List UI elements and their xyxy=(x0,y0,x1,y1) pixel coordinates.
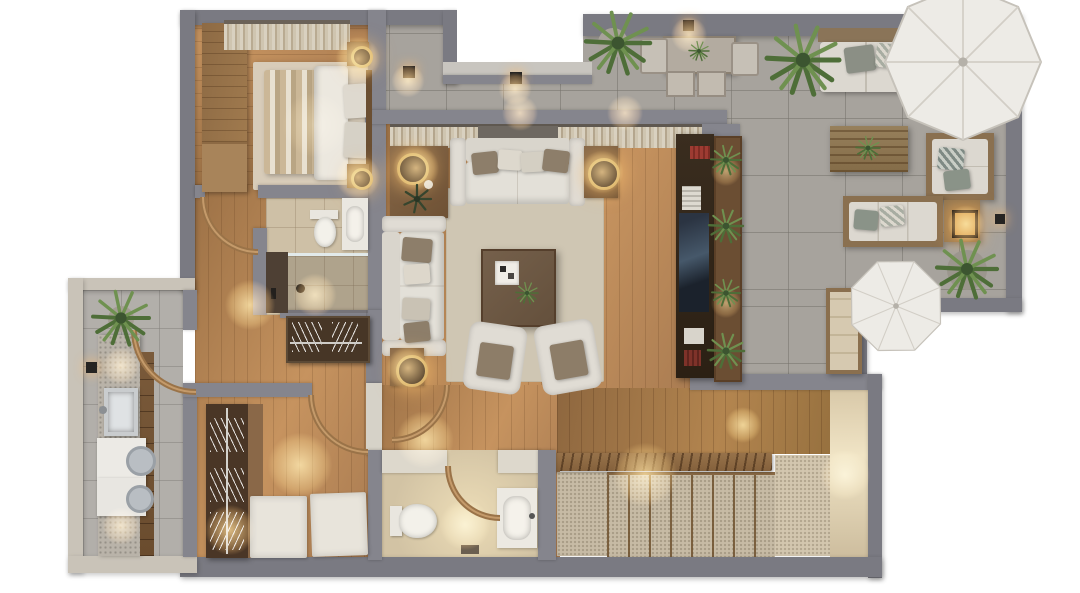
shower-head xyxy=(296,284,305,293)
sofa2-arm xyxy=(382,216,446,232)
lounge-chair-cushion xyxy=(830,292,858,370)
ceiling-light xyxy=(683,20,694,31)
outdoor-pillow xyxy=(943,168,971,191)
laundry-sink-basin xyxy=(108,392,134,432)
tv-screen xyxy=(679,213,709,312)
wall-stairs-right xyxy=(868,374,882,578)
bath-mat xyxy=(461,545,479,554)
plant-pot xyxy=(786,42,820,76)
storage-ottoman xyxy=(310,492,368,557)
outdoor-pillow xyxy=(875,43,905,70)
wall-terrace-right xyxy=(1006,36,1022,312)
wall-guestbath-left xyxy=(368,450,382,560)
wall-left xyxy=(180,10,195,290)
wardrobe-rail xyxy=(226,408,228,554)
wall-dressing-right xyxy=(366,383,382,455)
coat-hangers xyxy=(332,322,358,352)
dining-chair xyxy=(640,38,668,74)
outdoor-coffee-table xyxy=(830,126,908,172)
bed-duvet xyxy=(264,70,318,174)
outdoor-pillow xyxy=(937,147,965,172)
sofa-pillow xyxy=(471,151,499,176)
outdoor-pillow xyxy=(879,205,905,227)
sofa-arm xyxy=(450,138,466,206)
sofa-arm xyxy=(569,138,585,206)
coffee-table-tray xyxy=(495,261,519,285)
stair-lit-wall xyxy=(830,388,868,557)
wall-lamp xyxy=(403,66,415,78)
plant-pot xyxy=(947,250,987,290)
stair-landing xyxy=(775,455,830,556)
outdoor-pillow xyxy=(843,44,876,74)
toilet-bowl xyxy=(314,217,336,247)
dining-table xyxy=(663,36,736,74)
books xyxy=(682,186,701,210)
stair-treads xyxy=(607,472,775,562)
guest-toilet-bowl xyxy=(399,504,437,538)
table-lamp xyxy=(351,46,373,68)
outdoor-pillow xyxy=(853,209,879,231)
wall-guestbath-top-a xyxy=(382,450,447,473)
bath-counter xyxy=(266,252,288,313)
guest-sink-basin xyxy=(503,496,531,540)
dryer-door xyxy=(126,485,154,513)
wall-laundry-left xyxy=(68,278,83,573)
candle xyxy=(424,180,433,189)
bedroom-curtains xyxy=(224,24,350,50)
dining-stool xyxy=(666,71,695,97)
laundry-plant-pot xyxy=(108,306,134,332)
floor-plan-canvas xyxy=(0,0,1080,593)
tray-item xyxy=(500,266,506,272)
sofa2-pillow xyxy=(403,263,430,285)
outdoor-sofa-back xyxy=(818,28,1006,42)
bath-sink-basin xyxy=(346,206,364,242)
wall-lamp xyxy=(995,214,1005,224)
sofa2-pillow xyxy=(401,297,430,320)
plant-pot xyxy=(598,28,628,58)
wall-laundry-bottom xyxy=(68,556,197,573)
table-lamp xyxy=(351,168,373,190)
sofa-pillow xyxy=(542,148,570,173)
sofa2-back xyxy=(382,232,400,340)
wall-laundry-right-a xyxy=(183,290,197,330)
sofa-pillow xyxy=(497,149,522,171)
books xyxy=(684,350,701,366)
wall-lamp xyxy=(86,362,97,373)
wall-laundry-right-b xyxy=(183,392,197,557)
armchair-cushion xyxy=(476,342,514,380)
shelf-decor xyxy=(684,328,704,344)
wall-lounge-bottom xyxy=(865,298,1022,312)
washer-door xyxy=(126,446,156,476)
wall-bottom xyxy=(180,557,882,577)
ring-lamp xyxy=(397,153,429,185)
coat-hangers xyxy=(292,322,322,352)
books xyxy=(690,146,710,159)
wall-lamp xyxy=(510,72,522,84)
notch-void xyxy=(457,0,583,62)
coat-rail xyxy=(290,342,362,344)
dresser xyxy=(202,142,247,192)
sofa2-pillow xyxy=(403,321,431,344)
armchair-cushion xyxy=(549,339,589,380)
lantern-lamp xyxy=(952,210,978,238)
outdoor-pillow xyxy=(937,47,965,71)
stair-railing xyxy=(545,453,772,471)
storage-ottoman xyxy=(250,496,307,558)
dining-stool xyxy=(697,71,726,97)
wall-living-top xyxy=(365,110,727,124)
planter-wall xyxy=(714,136,742,382)
guest-sink-faucet xyxy=(529,513,535,519)
stair-lower-landing xyxy=(557,472,607,556)
outdoor-pillow xyxy=(964,44,995,72)
bath-bottle xyxy=(271,288,276,299)
sofa2-pillow xyxy=(401,237,433,264)
ring-lamp xyxy=(396,355,428,387)
wall-dressing-top xyxy=(183,383,312,397)
ring-lamp xyxy=(588,158,620,190)
wall-laundry-top xyxy=(68,278,195,290)
wall-guestbath-top-b xyxy=(498,450,540,473)
tray-item xyxy=(508,273,514,279)
dining-chair xyxy=(731,42,759,76)
wall-bathroom-left xyxy=(253,228,267,315)
stair-hall-floor xyxy=(557,388,830,454)
wall-guestbath-right xyxy=(538,450,556,560)
bed-blanket xyxy=(314,66,348,180)
laundry-faucet xyxy=(99,406,107,414)
